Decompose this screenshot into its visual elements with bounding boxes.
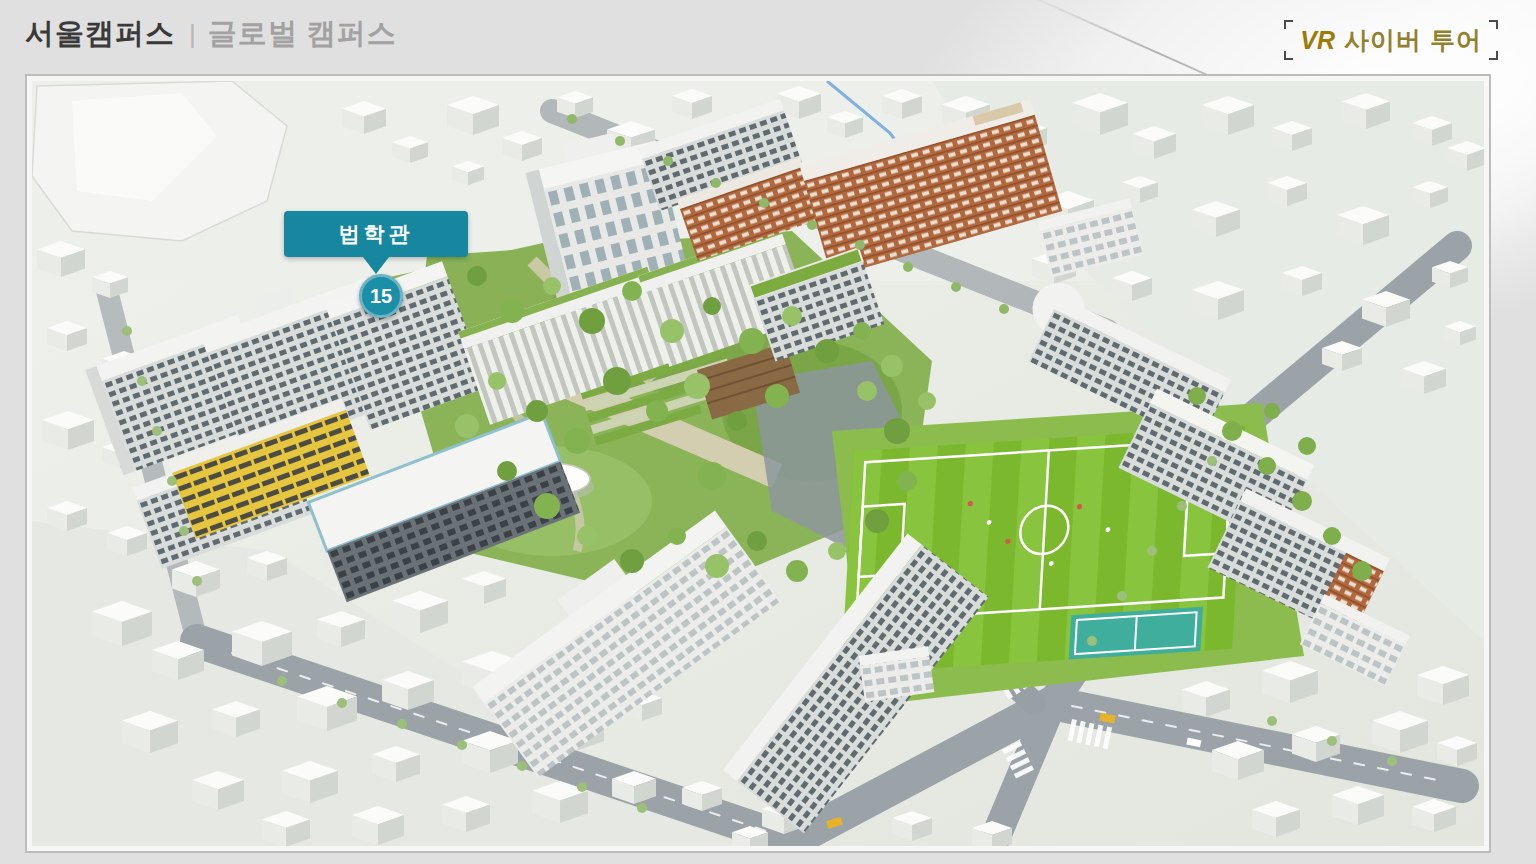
- vr-button-prefix: VR: [1300, 26, 1335, 55]
- futsal-court: [1069, 607, 1203, 660]
- campus-map-canvas: 법학관 15: [32, 81, 1484, 846]
- vr-button-label: 사이버 투어: [1344, 24, 1482, 57]
- campus-map-panel: 법학관 15: [25, 74, 1491, 853]
- tab-divider: |: [189, 19, 196, 50]
- campus-map-illustration: [32, 81, 1484, 846]
- campus-tabs: 서울캠퍼스 | 글로벌 캠퍼스: [25, 14, 397, 54]
- tab-global-campus[interactable]: 글로벌 캠퍼스: [208, 14, 397, 54]
- building-tooltip[interactable]: 법학관: [284, 211, 468, 257]
- vr-cyber-tour-button[interactable]: VR 사이버 투어: [1284, 20, 1498, 60]
- campus-header: 서울캠퍼스 | 글로벌 캠퍼스 VR 사이버 투어: [0, 0, 1536, 74]
- tab-seoul-campus[interactable]: 서울캠퍼스: [25, 14, 175, 54]
- building-number-badge[interactable]: 15: [359, 274, 403, 318]
